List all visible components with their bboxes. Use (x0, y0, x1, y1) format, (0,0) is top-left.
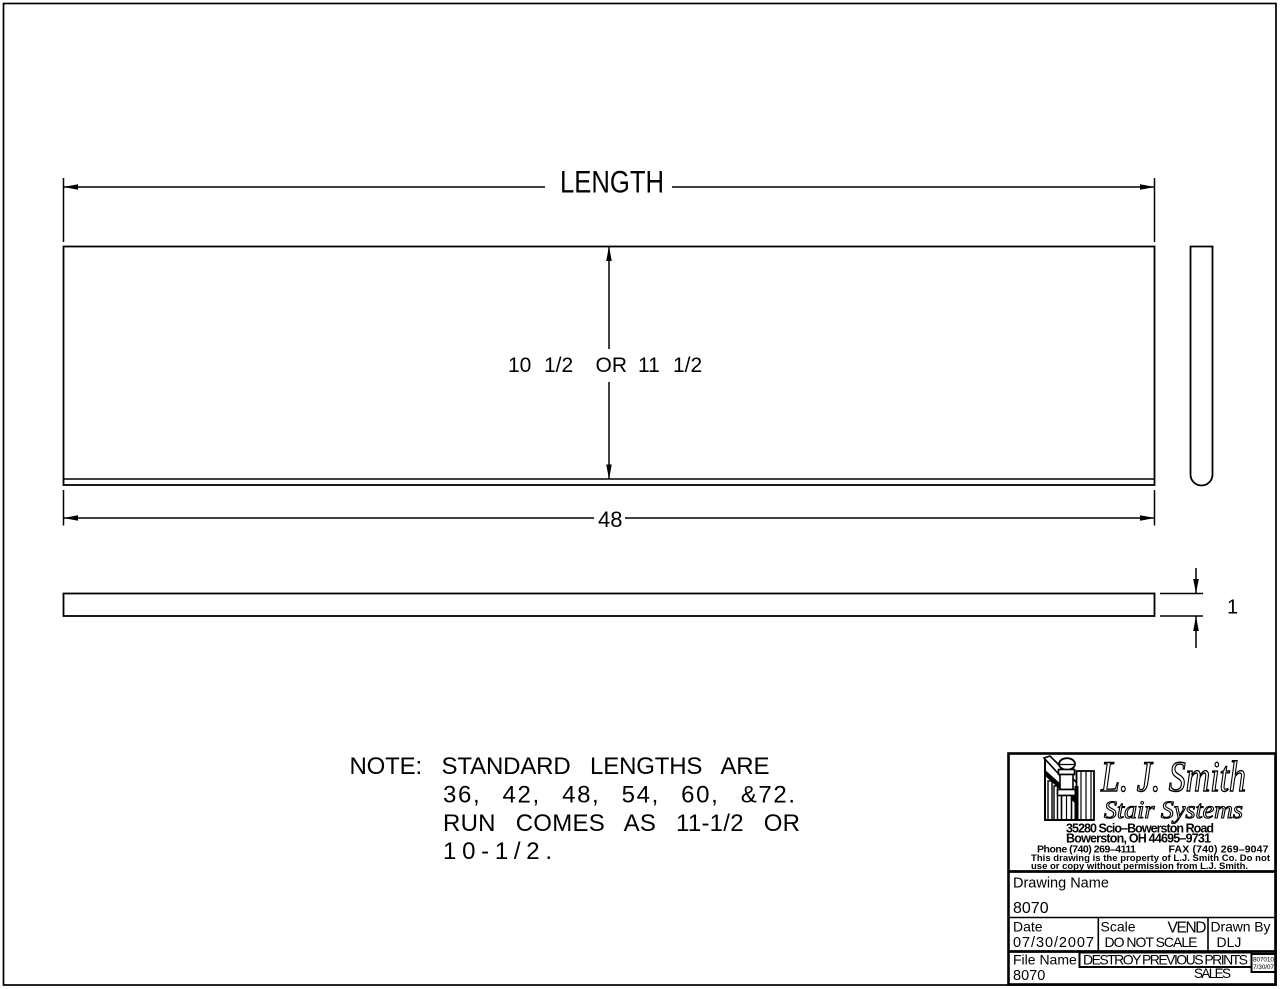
svg-text:1: 1 (1227, 597, 1238, 619)
svg-text:File Name: File Name (1013, 952, 1077, 968)
svg-text:Drawn By: Drawn By (1211, 919, 1271, 935)
svg-text:36, 42, 48, 54, 60, &72.: 36, 42, 48, 54, 60, &72. (443, 782, 795, 809)
svg-text:11: 11 (638, 354, 660, 377)
svg-text:Scale: Scale (1101, 919, 1136, 935)
svg-text:NOTE: STANDARD LENGTHS ARE: NOTE: STANDARD LENGTHS ARE (350, 753, 770, 780)
svg-text:7/30/07: 7/30/07 (1253, 964, 1274, 971)
svg-text:SALES: SALES (1194, 966, 1231, 981)
svg-text:OR: OR (596, 354, 628, 377)
svg-text:10: 10 (508, 354, 531, 377)
svg-text:1/2: 1/2 (673, 354, 702, 377)
svg-text:807010: 807010 (1253, 957, 1274, 964)
svg-text:48: 48 (598, 507, 622, 532)
svg-text:Stair Systems: Stair Systems (1104, 797, 1243, 824)
svg-text:Date: Date (1013, 919, 1043, 935)
svg-text:1/2: 1/2 (544, 354, 573, 377)
svg-text:L. J. Smith: L. J. Smith (1100, 754, 1246, 801)
svg-text:Drawing Name: Drawing Name (1013, 876, 1109, 892)
svg-text:LENGTH: LENGTH (560, 164, 664, 200)
svg-text:8070: 8070 (1013, 968, 1045, 984)
svg-text:DO NOT SCALE: DO NOT SCALE (1105, 934, 1198, 950)
svg-text:07/30/2007: 07/30/2007 (1013, 935, 1094, 951)
svg-text:RUN COMES AS 11-1/2 OR: RUN COMES AS 11-1/2 OR (443, 810, 800, 837)
svg-text:8070: 8070 (1013, 900, 1049, 917)
svg-text:DLJ: DLJ (1217, 934, 1242, 950)
